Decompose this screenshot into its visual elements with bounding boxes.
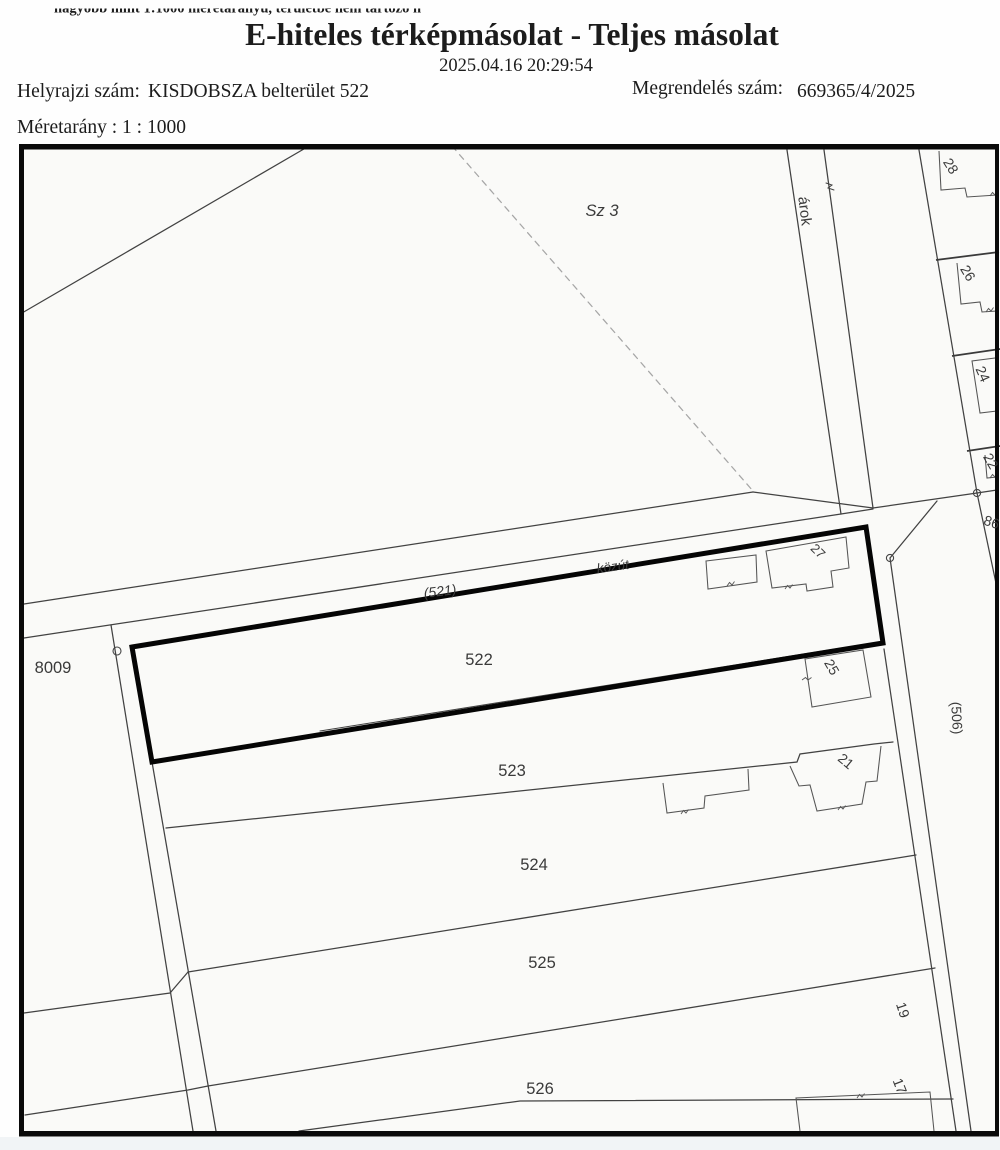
svg-text:Méretarány : 1 : 1000: Méretarány : 1 : 1000 bbox=[17, 117, 186, 138]
svg-text:árok: árok bbox=[794, 196, 814, 228]
svg-text:Megrendelés szám:: Megrendelés szám: bbox=[632, 78, 783, 99]
svg-text:KISDOBSZA belterület 522: KISDOBSZA belterület 522 bbox=[148, 81, 369, 102]
svg-text:2025.04.16 20:29:54: 2025.04.16 20:29:54 bbox=[439, 56, 593, 76]
svg-text:Helyrajzi szám:: Helyrajzi szám: bbox=[17, 81, 140, 102]
svg-text:Sz 3: Sz 3 bbox=[585, 202, 619, 220]
svg-text:523: 523 bbox=[498, 762, 526, 780]
svg-text:669365/4/2025: 669365/4/2025 bbox=[797, 81, 915, 102]
svg-text:522: 522 bbox=[465, 651, 493, 669]
svg-text:526: 526 bbox=[526, 1080, 554, 1098]
svg-text:(506): (506) bbox=[948, 701, 966, 734]
svg-text:8009: 8009 bbox=[35, 659, 72, 677]
svg-text:524: 524 bbox=[520, 856, 548, 874]
svg-text:525: 525 bbox=[528, 954, 556, 972]
svg-text:E-hiteles térképmásolat - Telj: E-hiteles térképmásolat - Teljes másolat bbox=[245, 17, 779, 52]
